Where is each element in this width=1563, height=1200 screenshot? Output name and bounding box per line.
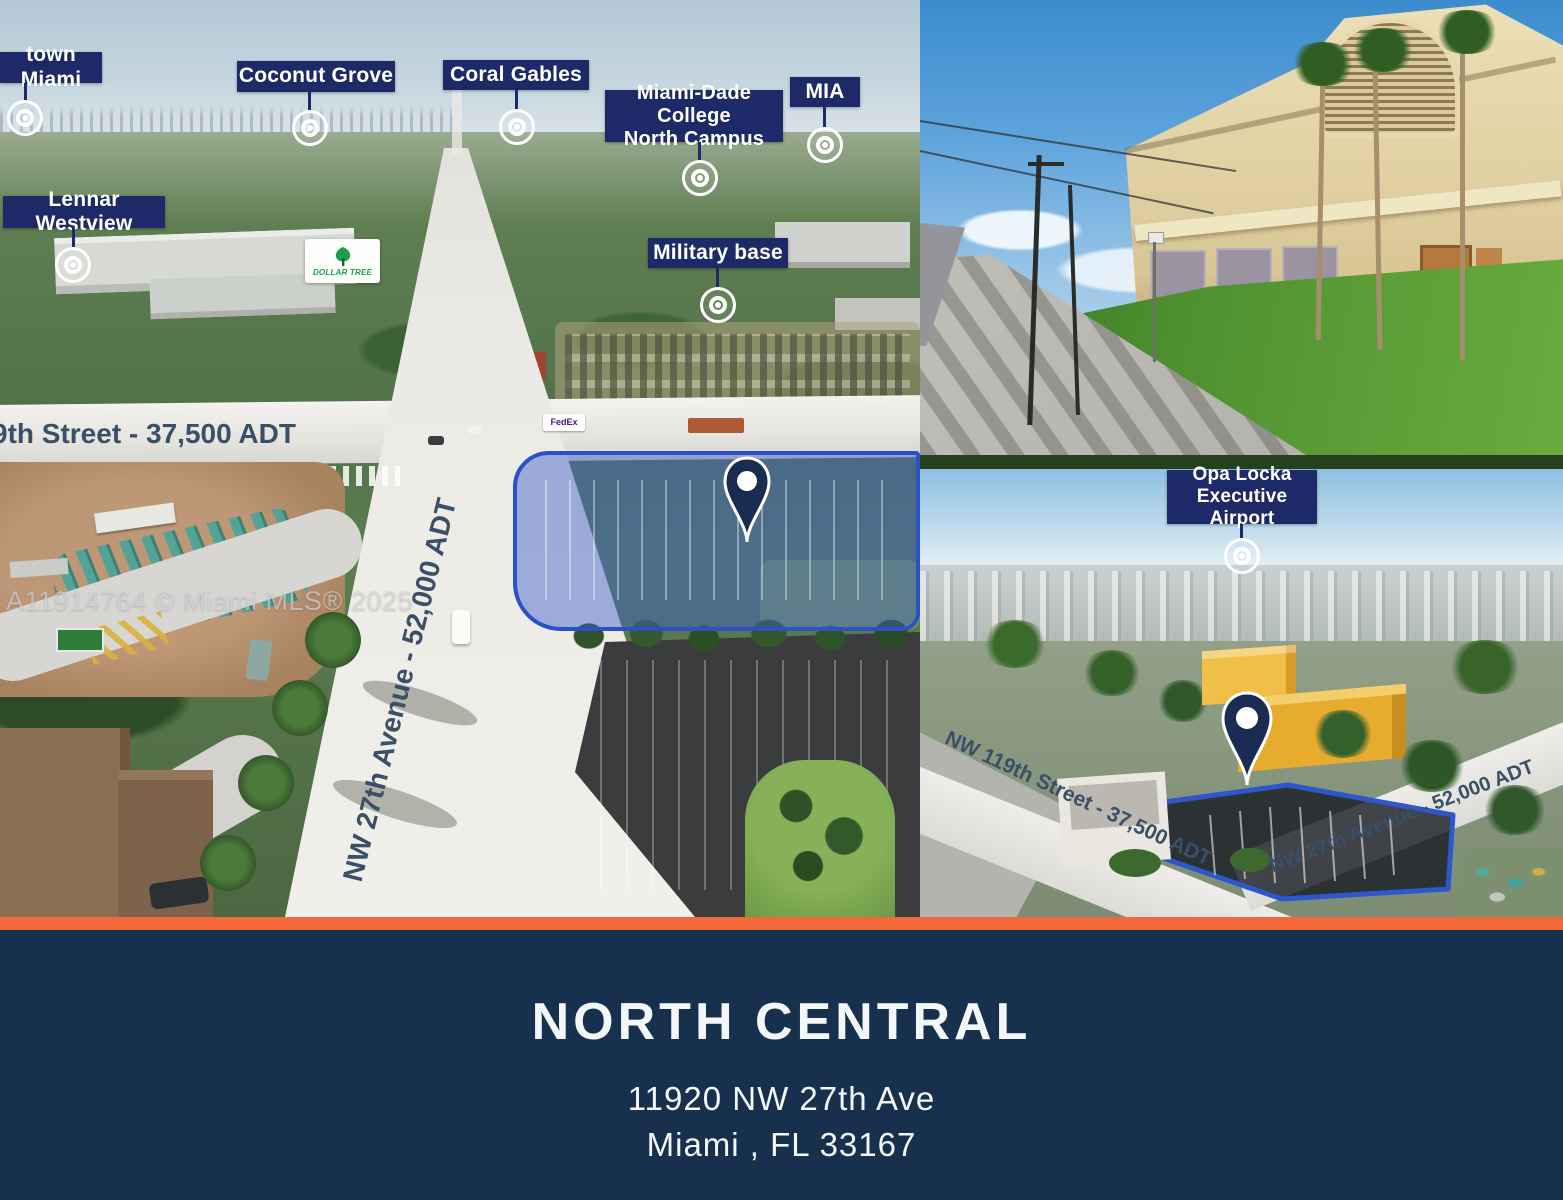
dollar-tree-logo-icon [332,246,354,268]
dollar-tree-sign: DOLLAR TREE [305,239,380,283]
street-sign [1148,232,1164,244]
street-photo-building [920,0,1563,455]
callout-stem [698,142,701,160]
callout-label: Coral Gables [443,63,589,87]
mls-watermark: A11914764 © Miami MLS® 2025 [6,586,413,617]
location-marker-icon [682,160,718,196]
palm-trunk [1460,40,1465,360]
location-marker-icon [499,109,535,145]
aerial-photo-main: FedEx town Miami Coconut Grove Coral Gab… [0,0,920,917]
street-label-119th: 9th Street - 37,500 ADT [0,418,296,450]
highlight-parking-stripes [545,480,885,600]
palm-tree [272,680,328,736]
callout-mia: MIA [790,77,860,107]
location-marker-icon [1224,538,1260,574]
callout-downtown-miami: town Miami [0,52,102,83]
tree [1230,848,1270,872]
callout-opa-locka-airport: Opa Locka Executive Airport [1167,470,1317,524]
address-line2: Miami , FL 33167 [0,1126,1563,1164]
callout-miami-dade-college: Miami-Dade CollegeNorth Campus [605,90,783,142]
divider-accent-bar [0,917,1563,930]
map-pin-icon [722,456,772,548]
callout-lennar-westview: Lennar Westview [3,196,165,228]
callout-stem [72,228,75,247]
pole-crossarm [1028,162,1064,166]
car [428,436,444,445]
palm-tree [305,612,361,668]
tree [1109,849,1161,877]
banner: NORTH CENTRAL 11920 NW 27th Ave Miami , … [0,930,1563,1200]
fedex-truck: FedEx [543,414,585,431]
callout-label: town Miami [0,43,102,91]
callout-coral-gables: Coral Gables [443,60,589,90]
location-marker-icon [700,287,736,323]
address-line1: 11920 NW 27th Ave [0,1080,1563,1118]
commercial-building [0,728,130,917]
callout-label: Lennar Westview [3,188,165,236]
callout-coconut-grove: Coconut Grove [237,61,395,92]
city-skyline [0,106,460,134]
callout-label: North Campus [605,128,783,151]
callout-stem [1240,524,1243,538]
palm-tree [200,835,256,891]
palm-fronds [1348,28,1418,72]
callout-military-base: Military base [648,238,788,268]
location-marker-icon [7,100,43,136]
callout-stem [515,90,518,109]
median-trees [760,770,880,890]
highway-sign [56,628,104,652]
callout-label: MIA [790,80,860,104]
shipping-container [688,418,744,433]
callout-stem [823,107,826,127]
location-marker-icon [292,110,328,146]
map-pin-icon [1220,691,1274,791]
warehouse-building [775,222,910,268]
truck [452,610,470,644]
location-marker-icon [55,247,91,283]
palm-fronds [1432,10,1502,54]
dollar-tree-sign-text: DOLLAR TREE [313,268,372,277]
sign-post [1153,242,1156,362]
location-marker-icon [807,127,843,163]
callout-label: Military base [648,241,788,265]
callout-stem [308,92,311,110]
palm-tree [238,755,294,811]
fedex-logo-text: FedEx [550,417,577,427]
callout-stem [716,268,719,287]
callout-label: Miami-Dade College [605,82,783,128]
callout-label: Opa Locka [1167,464,1317,486]
property-name-title: NORTH CENTRAL [0,992,1563,1052]
callout-stem [24,83,27,101]
callout-label: Coconut Grove [237,64,395,88]
real-estate-flyer: FedEx town Miami Coconut Grove Coral Gab… [0,0,1563,1200]
car [468,426,482,434]
aerial-photo-intersection: Opa Locka Executive Airport NW 119th Str… [920,455,1563,917]
